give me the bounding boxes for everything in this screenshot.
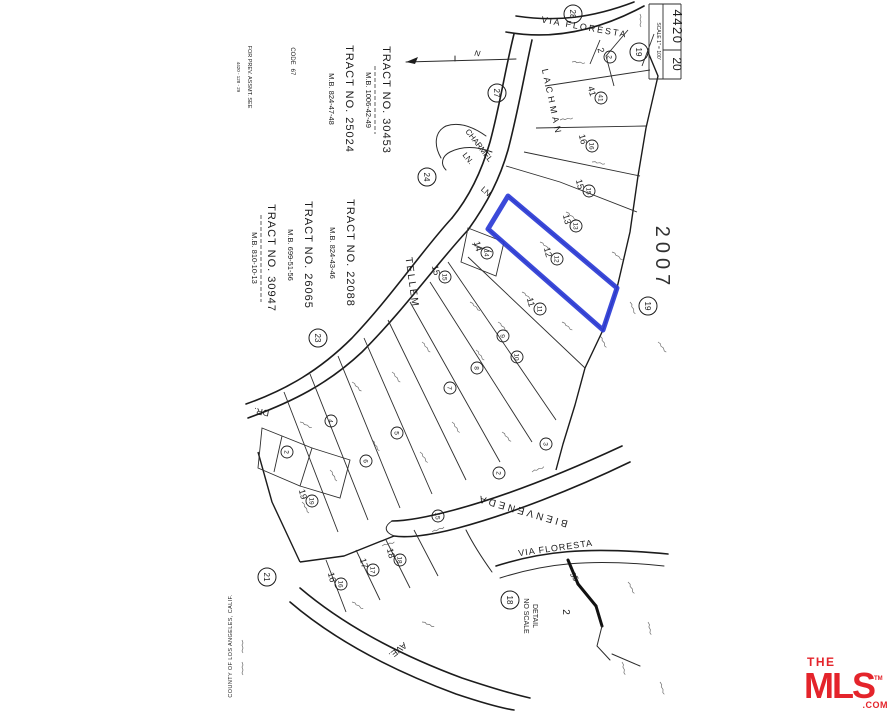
road-bienveneda-end [386,521,394,536]
lot-number-plain: 16 [326,571,338,583]
lot-marker: 9 [497,330,509,342]
junction-marker: 19 [630,43,648,61]
junction-marker: 19 [639,297,657,315]
tract-titles: TRACT NO. 30453 M.B. 1006-42-49 TRACT NO… [250,45,392,312]
county-note: COUNTY OF LOS ANGELES, CALIF. [228,594,234,697]
lot-number-plain: 19 [297,488,309,500]
lot-number: 2 [606,55,613,59]
junction-marker: 18 [501,591,519,609]
tract-mapbook: M.B. 824-47-48 [327,73,336,125]
sheet-scale-label: SCALE 1" = 100' [655,22,661,59]
fan-line [448,262,556,420]
lot-marker: 7 [444,382,456,394]
lot-number-plain: 14 [472,240,484,252]
junction-number: 19 [643,302,652,311]
lot-number: 16 [588,142,595,150]
junction-marker: 27 [488,84,506,102]
map-svg: 4420 20 SCALE 1" = 100' 2007 FOR PREV. A… [0,0,894,720]
fan-line [284,392,338,532]
lot-number-plain: 41 [586,85,598,97]
street-ln-suffix: LN. [479,185,494,200]
tract-mapbook: M.B. 1006-42-49 [364,72,373,128]
street-via-floresta-top: VIA FLORESTA [541,15,629,40]
street-dr-suffix: DR. [253,406,270,419]
detail-road-segment [596,606,602,626]
lot-marker: 22 [595,47,616,63]
lot-marker: 1919 [297,488,318,507]
lot-number-plain: 15 [430,264,442,276]
north-arrow-line [406,59,516,62]
lot-marker: 2 [493,467,505,479]
lot-number: 6 [362,459,369,463]
lot-marker: 5 [391,427,403,439]
detail-lot-number: 2 [560,609,571,615]
north-arrow: N [406,49,516,64]
lot-number: 41 [597,94,604,102]
lot-marker: 1717 [358,557,379,576]
lot-marker: 1818 [385,547,406,566]
tract-title: TRACT NO. 30947 [265,204,277,312]
detail-road-segment [578,584,596,606]
strip-line [506,166,637,212]
tract-mapbook: M.B. 810-10-13 [250,232,259,284]
north-arrow-head [406,57,418,64]
lot-marker: 8 [471,362,483,374]
boundary-southwest [258,452,300,562]
lot-number: 4 [327,419,334,423]
lot-marker: 1515 [430,264,451,283]
road-ave-edge1 [300,588,530,698]
parcel-11-south-line [468,257,585,368]
cluster-box [258,428,312,486]
road-connector [466,530,492,572]
lot-number: 8 [473,366,480,370]
lot-number: 2 [283,450,290,454]
lot-number: 10 [513,353,520,361]
year-stamp: 2007 [651,226,673,291]
lot-marker: 1111 [525,296,546,315]
lot-marker: 3 [540,438,552,450]
junction-number: 23 [313,334,322,343]
lot-number-plain: 16 [577,133,589,145]
junction-number: 18 [505,596,514,605]
code-value: 67 [289,69,295,76]
tract-boundary [258,52,658,562]
lot-number: 13 [572,222,579,230]
sheet-book-number: 4420 [670,10,685,45]
plat-map-page: 4420 20 SCALE 1" = 100' 2007 FOR PREV. A… [0,0,894,720]
lot-number: 12 [553,255,560,263]
junction-number: 21 [262,573,271,582]
prev-assmt-ref: 4420 - 128 - 29 [236,62,241,93]
junction-number: 27 [492,89,501,98]
street-lachman: LACHMAN [540,68,564,137]
street-bienveneda: BIENVENEDA [475,492,569,529]
cluster-line [274,436,282,472]
street-charmel-ln: LN. [461,151,476,166]
lot-number: 15 [434,512,441,520]
sheet-page-number: 20 [670,57,684,71]
detail-road-tail [597,626,610,660]
lot-number: 9 [499,334,506,338]
lot-number: 7 [446,386,453,390]
lot-marker: 1212 [542,246,563,265]
lot-markers: 2241411616151513131212141411111515910875… [281,47,616,590]
junction-number: 28 [568,10,577,19]
street-via-floresta-bottom: VIA FLORESTA [518,538,594,558]
lot-marker: 15 [432,510,444,522]
lot-number: 15 [585,187,592,195]
lot-number: 5 [393,431,400,435]
road-bienveneda-edge2 [394,462,630,537]
lot-marker: 1616 [577,133,598,152]
lot-marker: 1414 [472,240,493,259]
detail-leader [612,654,640,666]
fan-line [388,320,466,480]
themls-logo-tm: TM [874,676,883,682]
roads [246,2,668,710]
lot-number: 14 [483,249,490,257]
tract-mapbook: M.B. 824-43-46 [328,227,337,279]
strip-line [524,152,640,176]
detail-dimension: 35 [568,571,581,584]
lot-number: 2 [495,471,502,475]
boundary-east [556,52,658,470]
junction-marker: 21 [258,568,276,586]
lot-number: 16 [337,580,344,588]
fan-line [410,302,500,462]
lot-marker: 4141 [586,85,607,104]
themls-logo: THEMLSTM.COM [804,656,890,710]
street-tellem: TELLEM [402,257,420,309]
road-via-floresta-bottom-edge2 [500,562,664,578]
junction-number: 24 [422,173,431,182]
lot-number-plain: 13 [561,213,573,225]
tract-mapbook: M.B. 699-51-56 [286,229,295,281]
prev-assmt-note: FOR PREV. ASSMT. SEE [246,46,252,109]
bottom-strip-line [414,530,438,576]
lot-marker: 6 [360,455,372,467]
bottom-strip-line [386,540,410,588]
lot-number: 3 [542,442,549,446]
detail-inset-text: DETAIL NO SCALE 2 35 [522,571,581,635]
detail-label: DETAIL [531,604,538,628]
tract-title: TRACT NO. 30453 [380,46,392,154]
street-ave-suffix: AVE. [387,640,409,660]
fan-line [364,338,432,494]
lot-marker: 10 [511,351,523,363]
lot-marker: 1616 [326,571,347,590]
detail-noscale-label: NO SCALE [522,598,529,634]
lot-number: 11 [536,306,543,313]
road-charmel-end [436,126,446,158]
lot-number: 15 [441,273,448,281]
junction-number: 19 [634,48,643,57]
lot-marker: 4 [325,415,337,427]
lot-marker: 2 [281,446,293,458]
junction-marker: 24 [418,168,436,186]
lot-number: 18 [396,556,403,564]
junction-marker: 23 [309,329,327,347]
road-ave-edge2 [290,602,514,710]
lot-number: 17 [369,566,376,574]
north-label: N [474,49,481,59]
lot-number-plain: 17 [358,557,370,569]
lot-number: 19 [308,497,315,505]
lot-marker: 1515 [574,178,595,197]
boundary-south [300,536,394,562]
strip-line [545,70,650,86]
tract-title: TRACT NO. 25024 [343,45,355,153]
code-label: CODE [289,47,295,64]
margin-notes: FOR PREV. ASSMT. SEE 4420 - 128 - 29 COD… [228,46,295,698]
tract-title: TRACT NO. 26065 [302,201,314,309]
tract-title: TRACT NO. 22088 [344,199,356,307]
